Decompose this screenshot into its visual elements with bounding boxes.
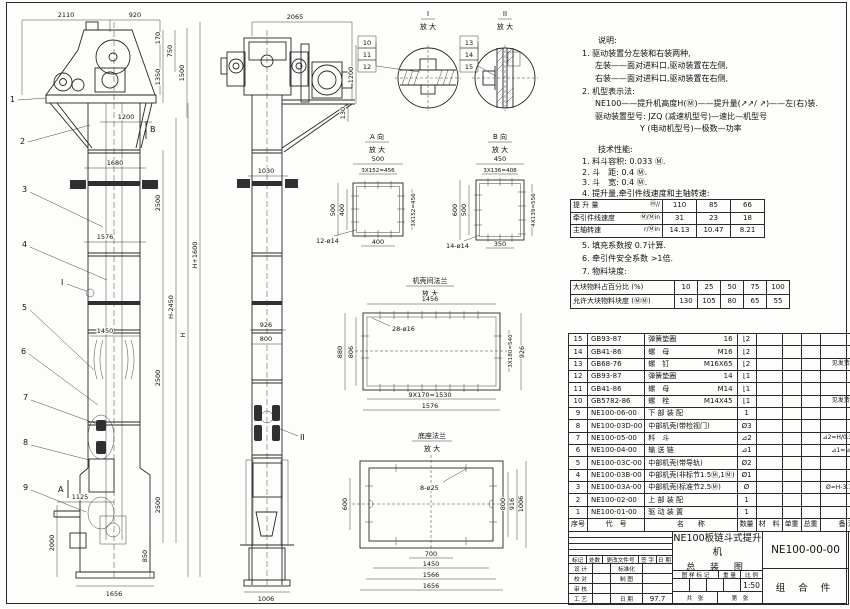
bom-material: [756, 420, 782, 432]
bom-code: GB5782-86: [588, 395, 645, 407]
dim-2500-a: 2500: [154, 195, 162, 212]
bom-qty: ⌊1: [737, 395, 756, 407]
detail-view-b: B 向 放 大 450 3X136=408 600 500 4X139=556 …: [446, 132, 537, 250]
drawing-date: 97.7: [643, 594, 673, 604]
bom-qty: ⌊2: [737, 358, 756, 370]
rev-header-sign: 签 字: [639, 556, 657, 564]
balloon-9: 9: [23, 483, 28, 492]
bom-total-weight: [801, 371, 820, 383]
bom-qty: Ø2: [737, 457, 756, 469]
bom-row: 9 NE100-06-00 下 部 装 配 1: [569, 408, 850, 420]
dim-b-450: 450: [494, 155, 506, 163]
tech-item: 3. 斗 宽: 0.4 Ⓜ.: [582, 178, 844, 188]
dim-flange-holes: 28-ø16: [392, 325, 415, 333]
dim-base-600: 600: [341, 498, 349, 510]
lump-value: 80: [721, 295, 744, 309]
bom-material: [756, 445, 782, 457]
perf-value: 23: [697, 212, 731, 225]
bom-part-spec: M16: [718, 349, 735, 356]
performance-row: 牵引件线速度Ⓜ/Ⓜin 31 23 18: [571, 212, 765, 225]
bom-material: [756, 371, 782, 383]
perf-unit: r/Ⓜin: [644, 227, 660, 233]
bom-total-weight: [801, 383, 820, 395]
bom-part-spec: M14X45: [704, 398, 735, 405]
note-line: 2. 机型表示法:: [582, 86, 844, 99]
balloon-6: 6: [21, 347, 26, 356]
perf-value: 14.13: [663, 225, 697, 238]
front-elevation-view: 2110 920 170 750 1350 1500 1200 1680 250…: [10, 11, 200, 598]
dim-base-700: 700: [425, 550, 437, 558]
bom-qty: ⊿2: [737, 432, 756, 444]
balloon-15: 15: [465, 63, 473, 71]
detail-mark-ii: II: [300, 433, 305, 442]
role-standardization: 标准化: [611, 564, 643, 574]
bom-remark: [820, 469, 850, 481]
detail-view-i: I 放 大 10 11 12: [358, 10, 461, 111]
bom-material: [756, 346, 782, 358]
rev-header-count: 处数: [587, 556, 603, 564]
bom-unit-weight: [782, 494, 801, 506]
performance-table: 提 升 量Ⓜ/∕ 110 85 66 牵引件线速度Ⓜ/Ⓜin 31 23 18 …: [570, 199, 765, 238]
dim-a-holes: 12-ø14: [316, 237, 339, 245]
bom-material: [756, 334, 782, 346]
bom-no: 14: [569, 346, 588, 358]
dim-a-pitch-top: 3X152=456: [361, 168, 395, 174]
balloon-13: 13: [465, 39, 473, 47]
lump-row: 大块物料占百分比 (%) 10 25 50 75 100: [571, 281, 790, 295]
bom-qty: ⌊1: [737, 383, 756, 395]
bom-part-name: 弹簧垫圈: [648, 335, 676, 343]
dim-1450: 1450: [97, 327, 114, 335]
engineering-drawing-sheet: 2110 920 170 750 1350 1500 1200 1680 250…: [0, 0, 850, 609]
bom-code: NE100-03C-00: [588, 457, 645, 469]
perf-label: 牵引件线速度: [573, 214, 615, 222]
detail-a-title: A 向: [370, 132, 384, 141]
balloon-4: 4: [22, 240, 27, 249]
balloon-5: 5: [22, 303, 27, 312]
bom-qty: 1: [737, 494, 756, 506]
bom-unit-weight: [782, 395, 801, 407]
detail-a-subtitle: 放 大: [369, 145, 385, 154]
bom-remark: 见发货清单: [820, 395, 850, 407]
balloon-2: 2: [20, 137, 25, 146]
bom-code: NE100-03B-00: [588, 469, 645, 481]
bom-no: 13: [569, 358, 588, 370]
dim-1030: 1030: [258, 167, 275, 175]
bom-total-weight: [801, 506, 820, 518]
bom-qty: ⌊2: [737, 346, 756, 358]
role-check: 校 对: [569, 574, 593, 584]
bom-material: [756, 457, 782, 469]
balloon-14: 14: [465, 51, 473, 59]
bom-code: GB68-76: [588, 358, 645, 370]
bom-remark: 见发货清单: [820, 358, 850, 370]
bom-total-weight: [801, 346, 820, 358]
detail-ii-title: II: [503, 10, 507, 18]
note-line: Y (电动机型号)—极数—功率: [640, 123, 844, 136]
lump-value: 25: [698, 281, 721, 295]
dim-a-pitch-right: 3X152=456: [411, 193, 417, 227]
bom-remark: [820, 383, 850, 395]
dim-920: 920: [129, 11, 141, 19]
bom-remark: ⊿2=H/0.2+5.75: [820, 432, 850, 444]
bom-code: NE100-03D-00: [588, 420, 645, 432]
bom-row: 14 GB41-86 螺 母M16 ⌊2: [569, 346, 850, 358]
drawing-title-line1: NE100板链斗式提升机: [673, 530, 762, 558]
bom-remark: [820, 506, 850, 518]
bom-material: [756, 469, 782, 481]
perf-value: 110: [663, 200, 697, 213]
bom-no: 10: [569, 395, 588, 407]
bom-qty: ⌊2: [737, 334, 756, 346]
drawing-views: 2110 920 170 750 1350 1500 1200 1680 250…: [0, 0, 565, 609]
bom-code: GB93-87: [588, 371, 645, 383]
dim-a-500-top: 500: [372, 155, 384, 163]
perf-label: 提 升 量: [573, 201, 598, 209]
bom-total-weight: [801, 494, 820, 506]
bom-material: [756, 383, 782, 395]
role-date-label: 日 期: [611, 594, 643, 604]
detail-view-casing-flange: 机壳间法兰 放 大 1456 28-ø16 880 806 3X180=540 …: [336, 276, 526, 410]
bom-part-name: 中部机壳(标准节2.5Ⓜ): [648, 483, 721, 491]
dim-1125: 1125: [72, 493, 89, 501]
balloon-10: 10: [363, 39, 371, 47]
bom-part-name: 中部机壳(带检视门): [648, 422, 709, 430]
lump-label: 大块物料占百分比 (%): [571, 281, 675, 295]
bom-row: 7 NE100-05-00 料 斗 ⊿2 ⊿2=H/0.2+5.75: [569, 432, 850, 444]
bom-no: 5: [569, 457, 588, 469]
dim-a-400-left: 400: [338, 204, 346, 216]
bom-part-name: 螺 母: [648, 348, 669, 356]
detail-mark-i: I: [61, 278, 63, 287]
bom-unit-weight: [782, 371, 801, 383]
dim-flange-1576: 1576: [422, 402, 439, 410]
bom-row: 6 NE100-04-00 输 送 链 ⊿1 ⊿1=⊿2X4: [569, 445, 850, 457]
bom-unit-weight: [782, 469, 801, 481]
bom-unit-weight: [782, 482, 801, 494]
section-mark-a: A: [58, 485, 64, 494]
bom-code: GB41-86: [588, 383, 645, 395]
perf-value: 8.21: [731, 225, 765, 238]
dim-2065: 2065: [287, 13, 304, 21]
bom-total-weight: [801, 334, 820, 346]
balloon-7: 7: [23, 393, 28, 402]
stamp-header-mark: 图 样 标 记: [673, 571, 719, 579]
drawing-scale: 1:50: [741, 579, 763, 592]
bom-unit-weight: [782, 445, 801, 457]
dim-2110: 2110: [58, 11, 75, 19]
dim-b-holes: 14-ø14: [446, 242, 469, 250]
detail-view-a: A 向 放 大 500 3X152=456 500 400 3X152=456 …: [316, 132, 417, 246]
perf-unit: Ⓜ/Ⓜin: [641, 215, 661, 221]
rev-header-doc: 更改文件号: [603, 556, 639, 564]
lump-value: 65: [744, 295, 767, 309]
bom-remark: Ø=H-3.15/2.5: [820, 482, 850, 494]
bom-total-weight: [801, 358, 820, 370]
bom-header-remark: 备 注: [820, 519, 850, 531]
bom-code: NE100-04-00: [588, 445, 645, 457]
bom-material: [756, 358, 782, 370]
dim-1350: 1350: [154, 69, 162, 86]
dim-flange-1456: 1456: [422, 295, 439, 303]
bom-material: [756, 432, 782, 444]
tech-item: 2. 斗 距: 0.4 Ⓜ.: [582, 168, 844, 178]
bom-header-unit-weight: 单重: [782, 519, 801, 531]
dim-a-500-left: 500: [329, 204, 337, 216]
bom-remark: [820, 334, 850, 346]
tech-item: 1. 料斗容积: 0.033 Ⓜ.: [582, 157, 844, 167]
bom-part-name: 驱 动 装 置: [648, 508, 683, 516]
dim-2000: 2000: [48, 535, 56, 552]
bom-row: 8 NE100-03D-00 中部机壳(带检视门) Ø3: [569, 420, 850, 432]
dim-1500: 1500: [178, 65, 186, 82]
bom-part-spec: 14: [724, 373, 735, 380]
perf-value: 18: [731, 212, 765, 225]
bom-code: GB93-87: [588, 334, 645, 346]
part-category: 组 合 件: [763, 569, 848, 604]
dim-800: 800: [260, 335, 272, 343]
bom-no: 11: [569, 383, 588, 395]
bom-code: NE100-01-00: [588, 506, 645, 518]
note-line: NE100——提升机高度H(Ⓜ)——提升量(↗↗/ ↗)——左(右)装.: [595, 98, 844, 111]
bom-header-total-weight: 总重: [801, 519, 820, 531]
tech-more-block: 5. 填充系数按 0.7计算. 6. 牵引件安全系数 >1倍. 7. 物料块度:: [582, 240, 844, 278]
bom-remark: [820, 457, 850, 469]
dim-850: 850: [141, 550, 149, 562]
bom-total-weight: [801, 457, 820, 469]
dim-1200: 1200: [118, 113, 135, 121]
dim-b-600: 600: [451, 204, 459, 216]
bom-row: 3 NE100-03A-00 中部机壳(标准节2.5Ⓜ) Ø Ø=H-3.15/…: [569, 482, 850, 494]
dim-1680: 1680: [107, 159, 124, 167]
lump-label: 允许大块物料块度 (ⓂⓂ): [571, 295, 675, 309]
rev-header-date: 日 期: [657, 556, 673, 564]
tech-item: 6. 牵引件安全系数 >1倍.: [582, 253, 844, 266]
bom-part-name: 中部机壳(非标节1.5Ⓜ,1Ⓜ): [648, 471, 734, 479]
bom-unit-weight: [782, 457, 801, 469]
dim-base-800: 800: [499, 498, 507, 510]
rev-header-mark: 标记: [569, 556, 587, 564]
bill-of-materials: 15 GB93-87 弹簧垫圈16 ⌊2 14 GB41-86 螺 母M16 ⌊…: [568, 333, 850, 532]
detail-i-subtitle: 放 大: [420, 22, 436, 31]
bom-part-name: 输 送 链: [648, 446, 673, 454]
bom-qty: Ø: [737, 482, 756, 494]
bom-part-name: 螺 栓: [648, 397, 669, 405]
bom-total-weight: [801, 395, 820, 407]
balloon-8: 8: [23, 438, 28, 447]
bom-part-name: 弹簧垫圈: [648, 372, 676, 380]
performance-row: 主轴转速r/Ⓜin 14.13 10.47 8.21: [571, 225, 765, 238]
dim-h-minus-2450: H-2450: [167, 295, 175, 319]
perf-value: 31: [663, 212, 697, 225]
stamp-header-scale: 比 例: [741, 571, 763, 579]
bom-remark: [820, 494, 850, 506]
bom-part-name: 下 部 装 配: [648, 409, 683, 417]
bom-no: 12: [569, 371, 588, 383]
bom-remark: [820, 408, 850, 420]
bom-remark: ⊿1=⊿2X4: [820, 445, 850, 457]
bom-total-weight: [801, 432, 820, 444]
bom-remark: [820, 371, 850, 383]
lump-value: 105: [698, 295, 721, 309]
bom-part-name: 中部机壳(带导轨): [648, 459, 702, 467]
dim-750: 750: [166, 45, 174, 57]
bom-part-spec: M14: [718, 386, 735, 393]
note-line: 驱动装置型号: JZQ (减速机型号)—速比—机型号: [595, 111, 844, 124]
dim-1656: 1656: [106, 590, 123, 598]
notes-block: 说明: 1. 驱动装置分左装和右装两种, 左装——面对进料口,驱动装置在左侧, …: [582, 35, 844, 136]
bom-no: 7: [569, 432, 588, 444]
bom-qty: 1: [737, 506, 756, 518]
role-design: 设 计: [569, 564, 593, 574]
dim-1006: 1006: [258, 595, 275, 603]
bom-part-name: 上 部 装 配: [648, 496, 683, 504]
dim-flange-926: 926: [518, 346, 526, 358]
bom-row: 10 GB5782-86 螺 栓M14X45 ⌊1 见发货清单: [569, 395, 850, 407]
dim-h: H: [179, 332, 187, 337]
lump-row: 允许大块物料块度 (ⓂⓂ) 130 105 80 65 55: [571, 295, 790, 309]
bom-part-spec: M16X65: [704, 361, 735, 368]
bom-unit-weight: [782, 358, 801, 370]
lump-value: 50: [721, 281, 744, 295]
tech-item: 7. 物料块度:: [582, 266, 844, 279]
bom-row: 4 NE100-03B-00 中部机壳(非标节1.5Ⓜ,1Ⓜ) Ø1: [569, 469, 850, 481]
bom-qty: ⌊1: [737, 371, 756, 383]
bom-part-name: 螺 母: [648, 385, 669, 393]
bom-unit-weight: [782, 334, 801, 346]
bom-material: [756, 506, 782, 518]
stamp-header-weight: 重 量: [719, 571, 741, 579]
role-blank: [611, 584, 643, 594]
dim-base-916: 916: [508, 498, 516, 510]
dim-base-holes: 8-ø25: [420, 484, 439, 492]
bom-material: [756, 395, 782, 407]
dim-flange-pitch-bottom: 9X170=1530: [409, 391, 452, 399]
bom-no: 9: [569, 408, 588, 420]
bom-total-weight: [801, 469, 820, 481]
note-line: 右装——面对进料口,驱动装置在右侧,: [595, 73, 844, 86]
bom-row: 11 GB41-86 螺 母M14 ⌊1: [569, 383, 850, 395]
performance-row: 提 升 量Ⓜ/∕ 110 85 66: [571, 200, 765, 213]
perf-label: 主轴转速: [573, 226, 601, 234]
lump-value: 100: [767, 281, 790, 295]
base-flange-title: 底座法兰: [418, 431, 446, 440]
bom-remark: [820, 420, 850, 432]
role-process: 工 艺: [569, 594, 593, 604]
dim-926-side: 926: [260, 321, 272, 329]
bom-unit-weight: [782, 383, 801, 395]
dim-base-1566: 1566: [423, 571, 440, 579]
bom-unit-weight: [782, 408, 801, 420]
bom-no: 4: [569, 469, 588, 481]
lump-value: 55: [767, 295, 790, 309]
side-elevation-view: 2065 1200 130 1030 926 800 1006 II: [221, 13, 356, 603]
bom-row: 5 NE100-03C-00 中部机壳(带导轨) Ø2: [569, 457, 850, 469]
bom-no: 8: [569, 420, 588, 432]
dim-flange-pitch-right: 3X180=540: [508, 334, 514, 368]
dim-base-1450: 1450: [423, 560, 440, 568]
drawing-number: NE100-00-00: [763, 532, 848, 569]
sheet-number: 第 张: [718, 592, 763, 604]
bom-part-spec: 16: [724, 336, 735, 343]
detail-ii-subtitle: 放 大: [497, 22, 513, 31]
bom-code: NE100-06-00: [588, 408, 645, 420]
bom-total-weight: [801, 445, 820, 457]
bom-total-weight: [801, 408, 820, 420]
lump-value: 130: [675, 295, 698, 309]
dim-b-500: 500: [460, 204, 468, 216]
bom-qty: Ø1: [737, 469, 756, 481]
role-drafting: 制 图: [611, 574, 643, 584]
bom-part-name: 螺 钉: [648, 360, 669, 368]
balloon-11: 11: [363, 51, 371, 59]
note-line: 左装——面对进料口,驱动装置在左侧,: [595, 60, 844, 73]
bom-material: [756, 494, 782, 506]
tech-performance-block: 技术性能: 1. 料斗容积: 0.033 Ⓜ. 2. 斗 距: 0.4 Ⓜ. 3…: [582, 145, 844, 199]
dim-130: 130: [339, 107, 347, 119]
tech-heading: 技术性能:: [598, 145, 844, 155]
title-block: 标记 处数 更改文件号 签 字 日 期 设 计 标准化 校 对 制 图 审 核 …: [568, 531, 849, 605]
lump-value: 75: [744, 281, 767, 295]
section-mark-b: B: [150, 125, 156, 134]
perf-value: 85: [697, 200, 731, 213]
tech-item: 4. 提升量,牵引件线速度和主轴转速:: [582, 189, 844, 199]
bom-header-code: 代 号: [588, 519, 645, 531]
bom-code: NE100-03A-00: [588, 482, 645, 494]
dim-a-400-bottom: 400: [372, 238, 384, 246]
bom-unit-weight: [782, 346, 801, 358]
bom-no: 2: [569, 494, 588, 506]
bom-material: [756, 482, 782, 494]
bom-unit-weight: [782, 420, 801, 432]
bom-qty: Ø3: [737, 420, 756, 432]
bom-row: 15 GB93-87 弹簧垫圈16 ⌊2: [569, 334, 850, 346]
dim-base-1656: 1656: [423, 582, 440, 590]
dim-170: 170: [154, 32, 162, 44]
perf-unit: Ⓜ/∕: [650, 202, 660, 208]
bom-total-weight: [801, 482, 820, 494]
bom-material: [756, 408, 782, 420]
bom-row: 12 GB93-87 弹簧垫圈14 ⌊1: [569, 371, 850, 383]
bom-no: 1: [569, 506, 588, 518]
dim-1576: 1576: [97, 233, 114, 241]
detail-view-ii: II 放 大 13 14 15: [460, 10, 538, 111]
bom-part-name: 料 斗: [648, 434, 669, 442]
dim-2500-b: 2500: [154, 370, 162, 387]
casing-flange-title: 机壳间法兰: [413, 276, 448, 285]
bom-remark: [820, 346, 850, 358]
dim-h-plus-1600: H+1600: [191, 242, 199, 269]
bom-row: 1 NE100-01-00 驱 动 装 置 1: [569, 506, 850, 518]
tech-item: 5. 填充系数按 0.7计算.: [582, 240, 844, 253]
sheet-total: 共 张: [673, 592, 718, 604]
dim-1200-side: 1200: [347, 67, 355, 84]
bom-row: 13 GB68-76 螺 钉M16X65 ⌊2 见发货清单: [569, 358, 850, 370]
dim-b-pitch-right: 4X139=556: [531, 193, 537, 227]
base-flange-subtitle: 放 大: [424, 444, 440, 453]
bom-code: NE100-05-00: [588, 432, 645, 444]
detail-view-base-flange: 底座法兰 放 大 8-ø25 600 800 916 1006 700 1450…: [341, 431, 526, 590]
bom-no: 6: [569, 445, 588, 457]
bom-total-weight: [801, 420, 820, 432]
notes-heading: 说明:: [598, 35, 844, 48]
detail-b-title: B 向: [493, 132, 507, 141]
bom-code: NE100-02-00: [588, 494, 645, 506]
detail-i-title: I: [427, 10, 429, 18]
bom-code: GB41-86: [588, 346, 645, 358]
perf-value: 66: [731, 200, 765, 213]
dim-b-pitch-top: 3X136=408: [483, 168, 517, 174]
